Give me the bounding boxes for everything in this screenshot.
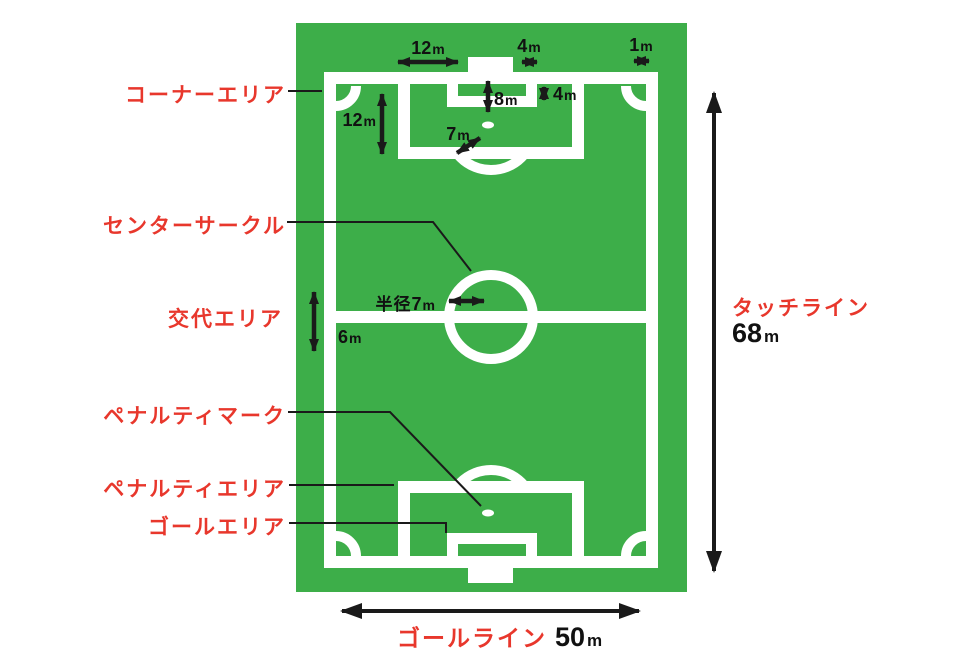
goal-top	[468, 57, 513, 77]
measurement-corner-arc: 1m	[616, 35, 666, 56]
measurement-substitution-zone: 6m	[338, 327, 361, 348]
measurement-center-circle-radius: 半径7m	[345, 290, 435, 315]
measurement-penalty-depth: 12m	[326, 110, 376, 131]
goal-line-length: 50m	[555, 622, 602, 653]
measurement-goal-area-depth: 4m	[553, 84, 576, 105]
label-penalty-mark: ペナルティマーク	[103, 400, 286, 430]
measurement-penalty-arc-radius: 7m	[433, 124, 483, 145]
label-substitution-area: 交代エリア	[168, 303, 283, 333]
measurement-penalty-mark-distance: 8m	[494, 89, 517, 110]
penalty-mark-bottom	[482, 510, 494, 517]
touch-line-length: 68m	[732, 318, 779, 349]
soccer-field-diagram: コーナーエリア センターサークル 交代エリア ペナルティマーク ペナルティエリア…	[0, 0, 980, 665]
measurement-penalty-half-width: 12m	[403, 38, 453, 59]
label-goal-line: ゴールライン 50m	[397, 619, 602, 653]
penalty-mark-top	[482, 122, 494, 129]
goal-bottom	[468, 565, 513, 583]
label-penalty-area: ペナルティエリア	[103, 473, 286, 503]
label-goal-area: ゴールエリア	[148, 511, 286, 541]
label-corner-area: コーナーエリア	[125, 79, 286, 109]
label-center-circle: センターサークル	[103, 210, 286, 240]
measurement-goal-width: 4m	[504, 36, 554, 57]
